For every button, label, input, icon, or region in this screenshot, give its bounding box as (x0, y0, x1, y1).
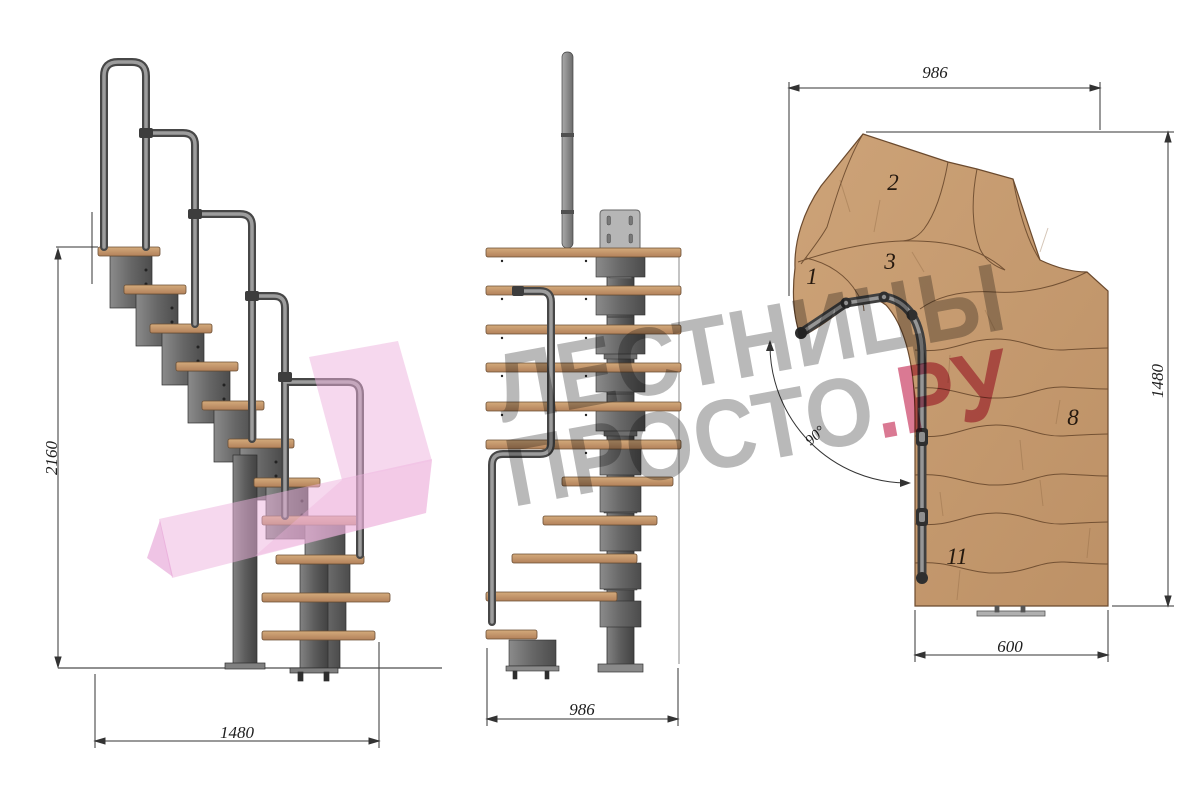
tread-number-3: 3 (870, 249, 910, 275)
dim-label-top-986-plan: 986 (905, 63, 965, 83)
dim-label-bottom-600-plan: 600 (980, 637, 1040, 657)
dim-label-height-2160: 2160 (42, 428, 62, 488)
tread-number-2: 2 (873, 170, 913, 196)
plan-wood-silhouette (793, 134, 1108, 606)
tread-number-11: 11 (937, 544, 977, 570)
drawing-graphics (0, 0, 1200, 790)
dim-label-right-1480-plan: 1480 (1148, 351, 1168, 411)
handrail-front-view (492, 286, 551, 622)
treads-front-view (486, 248, 681, 639)
column-base-plate (225, 663, 265, 669)
column-base-plate (290, 668, 338, 673)
newel-post (562, 52, 573, 248)
front-elevation-view (486, 52, 681, 726)
angle-arc-90 (766, 340, 911, 487)
column-base-plate (598, 664, 643, 672)
tread-number-8: 8 (1053, 405, 1093, 431)
staircase-drawing-sheet: 2160 1480 986 986 1480 600 90° 1 2 3 8 1… (0, 0, 1200, 790)
dim-label-width-1480-side: 1480 (207, 723, 267, 743)
dim-label-width-986-front: 986 (552, 700, 612, 720)
tread-number-1: 1 (792, 264, 832, 290)
floor-bracket-plan (977, 606, 1045, 616)
support-column (300, 564, 328, 668)
stair-modules-side (110, 256, 350, 681)
plan-view (766, 82, 1174, 662)
